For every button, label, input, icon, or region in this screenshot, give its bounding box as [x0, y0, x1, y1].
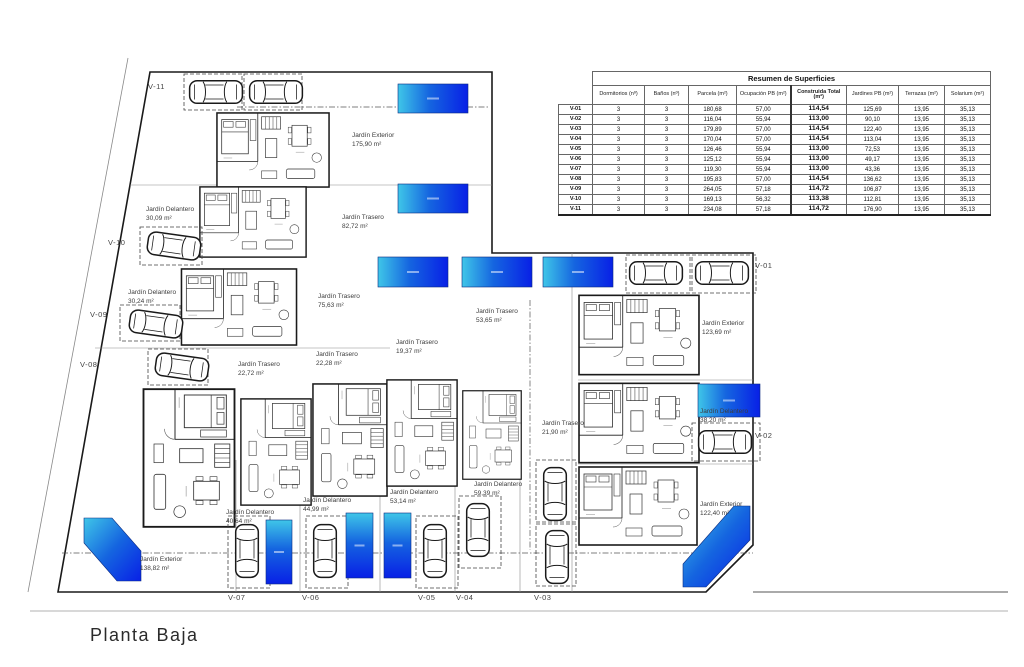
car-icon: [546, 531, 569, 584]
villa-unit: [181, 269, 296, 345]
garden-label: Jardín Delantero59,39 m²: [474, 481, 522, 499]
cell: 119,30: [689, 165, 737, 175]
garden-label: Jardín Trasero53,65 m²: [476, 308, 518, 326]
garden-name: Jardín Exterior: [702, 320, 744, 329]
garden-label: Jardín Delantero30,09 m²: [146, 206, 194, 224]
cell: 13,95: [899, 105, 945, 115]
car-icon: [236, 525, 259, 578]
garden-label: Jardín Exterior175,90 m²: [352, 132, 394, 150]
garden-name: Jardín Trasero: [318, 293, 360, 302]
unit-label: V-05: [418, 593, 435, 602]
car-icon: [630, 262, 683, 285]
garden-name: Jardín Trasero: [542, 420, 584, 429]
garden-label: Jardín Delantero44,99 m²: [303, 497, 351, 515]
table-row: V-0333179,8957,00114,54122,4013,9535,13: [559, 125, 991, 135]
cell: 264,05: [689, 185, 737, 195]
pool-text-mark: [572, 271, 584, 273]
garden-name: Jardín Exterior: [352, 132, 394, 141]
row-label: V-01: [559, 105, 593, 115]
garden-name: Jardín Trasero: [396, 339, 438, 348]
unit-label: V-07: [228, 593, 245, 602]
cell: 113,00: [791, 155, 847, 165]
car-icon: [696, 262, 749, 285]
cell: 3: [645, 195, 689, 205]
pool-text-mark: [393, 545, 403, 547]
floor-plan-sheet: Jardín Exterior175,90 m²Jardín Trasero82…: [0, 0, 1024, 667]
garden-area: 175,90 m²: [352, 141, 394, 150]
cell: 13,95: [899, 185, 945, 195]
cell: 114,54: [791, 125, 847, 135]
cell: 35,13: [945, 165, 991, 175]
cell: 55,94: [737, 155, 791, 165]
table-row: V-0133180,6857,00114,54125,6913,9535,13: [559, 105, 991, 115]
cell: 3: [645, 205, 689, 216]
cell: 112,81: [847, 195, 899, 205]
garden-label: Jardín Trasero22,72 m²: [238, 361, 280, 379]
cell: 57,00: [737, 125, 791, 135]
cell: 3: [593, 145, 645, 155]
villa-unit: [579, 383, 699, 462]
cell: 125,69: [847, 105, 899, 115]
cell: 13,95: [899, 125, 945, 135]
pool-text-mark: [427, 98, 439, 100]
car-icon: [190, 81, 243, 104]
garden-area: 138,82 m²: [140, 565, 182, 574]
cell: 3: [593, 105, 645, 115]
cell: 35,13: [945, 145, 991, 155]
garden-area: 30,24 m²: [128, 298, 176, 307]
column-header: Dormitorios (nº): [593, 86, 645, 105]
cell: 13,95: [899, 145, 945, 155]
cell: 3: [593, 185, 645, 195]
cell: 126,46: [689, 145, 737, 155]
garden-label: Jardín Delantero53,14 m²: [390, 489, 438, 507]
cell: 72,53: [847, 145, 899, 155]
villa-unit: [144, 389, 235, 527]
garden-area: 75,63 m²: [318, 302, 360, 311]
pool-text-mark: [274, 551, 284, 553]
cell: 3: [593, 135, 645, 145]
garden-area: 122,40 m²: [700, 510, 742, 519]
garden-area: 22,72 m²: [238, 370, 280, 379]
villa-unit: [463, 391, 522, 480]
garden-label: Jardín Trasero75,63 m²: [318, 293, 360, 311]
cell: 13,95: [899, 205, 945, 216]
cell: 3: [645, 155, 689, 165]
cell: 234,08: [689, 205, 737, 216]
cell: 3: [593, 205, 645, 216]
cell: 13,95: [899, 175, 945, 185]
garden-area: 22,28 m²: [316, 360, 358, 369]
surface-summary-table: Resumen de SuperficiesDormitorios (nº)Ba…: [558, 71, 991, 216]
table-row: V-0633125,1255,94113,0049,1713,9535,13: [559, 155, 991, 165]
garden-area: 19,37 m²: [396, 348, 438, 357]
cell: 3: [645, 115, 689, 125]
cell: 90,10: [847, 115, 899, 125]
garden-area: 38,20 m²: [700, 417, 748, 426]
cell: 3: [645, 135, 689, 145]
table-row: V-0833195,8357,00114,54136,6213,9535,13: [559, 175, 991, 185]
pool-text-mark: [427, 198, 439, 200]
garden-label: Jardín Trasero19,37 m²: [396, 339, 438, 357]
cell: 3: [593, 175, 645, 185]
cell: 195,83: [689, 175, 737, 185]
row-label: V-09: [559, 185, 593, 195]
pool-text-mark: [407, 271, 419, 273]
garden-name: Jardín Trasero: [476, 308, 518, 317]
pool-text-mark: [491, 271, 503, 273]
cell: 114,54: [791, 105, 847, 115]
cell: 170,04: [689, 135, 737, 145]
garden-label: Jardín Exterior138,82 m²: [140, 556, 182, 574]
cell: 3: [593, 165, 645, 175]
row-label: V-07: [559, 165, 593, 175]
cell: 57,00: [737, 175, 791, 185]
column-header: Jardines PB (m²): [847, 86, 899, 105]
garden-label: Jardín Trasero82,72 m²: [342, 214, 384, 232]
column-header: Ocupación PB (m²): [737, 86, 791, 105]
garden-label: Jardín Delantero38,20 m²: [700, 408, 748, 426]
garden-name: Jardín Delantero: [474, 481, 522, 490]
cell: 35,13: [945, 155, 991, 165]
table-row: V-0733119,3055,94113,0043,3613,9535,13: [559, 165, 991, 175]
garden-area: 53,14 m²: [390, 498, 438, 507]
column-header: Baños (nº): [645, 86, 689, 105]
villa-unit: [313, 384, 387, 496]
garden-area: 123,69 m²: [702, 329, 744, 338]
column-header: Parcela (m²): [689, 86, 737, 105]
garden-name: Jardín Trasero: [342, 214, 384, 223]
cell: 3: [593, 195, 645, 205]
unit-label: V-11: [148, 82, 165, 91]
cell: 176,90: [847, 205, 899, 216]
cell: 13,95: [899, 165, 945, 175]
cell: 35,13: [945, 205, 991, 216]
row-label: V-03: [559, 125, 593, 135]
cell: 43,36: [847, 165, 899, 175]
table-row: V-1033169,1356,32113,38112,8113,9535,13: [559, 195, 991, 205]
cell: 113,00: [791, 115, 847, 125]
plan-title: Planta Baja: [90, 625, 199, 646]
unit-label: V-01: [755, 261, 772, 270]
cell: 3: [645, 145, 689, 155]
unit-label: V-02: [755, 431, 772, 440]
car-icon: [424, 525, 447, 578]
cell: 113,00: [791, 145, 847, 155]
cell: 57,00: [737, 105, 791, 115]
cell: 55,94: [737, 165, 791, 175]
cell: 55,94: [737, 115, 791, 125]
garden-label: Jardín Exterior123,69 m²: [702, 320, 744, 338]
car-icon: [544, 468, 567, 521]
cell: 114,54: [791, 135, 847, 145]
garden-name: Jardín Delantero: [700, 408, 748, 417]
garden-area: 53,65 m²: [476, 317, 518, 326]
cell: 55,94: [737, 145, 791, 155]
cell: 3: [645, 105, 689, 115]
garden-label: Jardín Delantero30,24 m²: [128, 289, 176, 307]
car-icon: [314, 525, 337, 578]
cell: 116,04: [689, 115, 737, 125]
cell: 35,13: [945, 135, 991, 145]
villa-unit: [217, 113, 329, 187]
cell: 35,13: [945, 195, 991, 205]
row-label: V-05: [559, 145, 593, 155]
cell: 13,95: [899, 155, 945, 165]
pool-text-mark: [723, 400, 735, 402]
cell: 57,00: [737, 135, 791, 145]
cell: 3: [645, 165, 689, 175]
cell: 3: [645, 125, 689, 135]
villa-unit: [241, 399, 311, 505]
cell: 35,13: [945, 115, 991, 125]
cell: 122,40: [847, 125, 899, 135]
table-row: V-0933264,0557,18114,72106,8713,9535,13: [559, 185, 991, 195]
garden-name: Jardín Exterior: [140, 556, 182, 565]
table-row: V-0233116,0455,94113,0090,1013,9535,13: [559, 115, 991, 125]
garden-area: 40,64 m²: [226, 518, 274, 527]
unit-label: V-06: [302, 593, 319, 602]
garden-name: Jardín Delantero: [303, 497, 351, 506]
garden-name: Jardín Delantero: [146, 206, 194, 215]
cell: 180,68: [689, 105, 737, 115]
cell: 35,13: [945, 105, 991, 115]
row-label: V-10: [559, 195, 593, 205]
car-icon: [467, 504, 490, 557]
row-label: V-08: [559, 175, 593, 185]
cell: 3: [645, 185, 689, 195]
villa-unit: [579, 295, 699, 374]
cell: 56,32: [737, 195, 791, 205]
garden-area: 44,99 m²: [303, 506, 351, 515]
cell: 3: [593, 155, 645, 165]
table-row: V-0533126,4655,94113,0072,5313,9535,13: [559, 145, 991, 155]
cell: 179,89: [689, 125, 737, 135]
cell: 3: [593, 115, 645, 125]
garden-area: 21,90 m²: [542, 429, 584, 438]
cell: 35,13: [945, 125, 991, 135]
pool-text-mark: [355, 545, 365, 547]
garden-name: Jardín Exterior: [700, 501, 742, 510]
cell: 106,87: [847, 185, 899, 195]
unit-label: V-03: [534, 593, 551, 602]
cell: 57,18: [737, 205, 791, 216]
villa-unit: [200, 187, 306, 257]
cell: 3: [645, 175, 689, 185]
cell: 57,18: [737, 185, 791, 195]
garden-name: Jardín Delantero: [128, 289, 176, 298]
garden-name: Jardín Delantero: [390, 489, 438, 498]
column-header: Solarium (m²): [945, 86, 991, 105]
car-icon: [250, 81, 303, 104]
cell: 35,13: [945, 185, 991, 195]
garden-label: Jardín Trasero21,90 m²: [542, 420, 584, 438]
cell: 114,72: [791, 185, 847, 195]
cell: 114,72: [791, 205, 847, 216]
cell: 13,95: [899, 135, 945, 145]
villa-unit: [387, 380, 457, 486]
table-row: V-0433170,0457,00114,54113,0413,9535,13: [559, 135, 991, 145]
unit-label: V-04: [456, 593, 473, 602]
cell: 114,54: [791, 175, 847, 185]
garden-name: Jardín Trasero: [316, 351, 358, 360]
cell: 169,13: [689, 195, 737, 205]
garden-area: 59,39 m²: [474, 490, 522, 499]
row-label: V-06: [559, 155, 593, 165]
table-row: V-1133234,0857,18114,72176,9013,9535,13: [559, 205, 991, 216]
row-label: V-02: [559, 115, 593, 125]
cell: 125,12: [689, 155, 737, 165]
unit-label: V-10: [108, 238, 125, 247]
garden-area: 30,09 m²: [146, 215, 194, 224]
garden-area: 82,72 m²: [342, 223, 384, 232]
cell: 113,38: [791, 195, 847, 205]
cell: 136,62: [847, 175, 899, 185]
row-label: V-04: [559, 135, 593, 145]
garden-name: Jardín Trasero: [238, 361, 280, 370]
garden-label: Jardín Delantero40,64 m²: [226, 509, 274, 527]
unit-label: V-08: [80, 360, 97, 369]
cell: 113,04: [847, 135, 899, 145]
cell: 13,95: [899, 115, 945, 125]
column-header: Terrazas (m²): [899, 86, 945, 105]
table-title: Resumen de Superficies: [593, 72, 991, 86]
cell: 49,17: [847, 155, 899, 165]
cell: 3: [593, 125, 645, 135]
villa-unit: [579, 467, 697, 545]
garden-label: Jardín Exterior122,40 m²: [700, 501, 742, 519]
cell: 35,13: [945, 175, 991, 185]
column-header: Construida Total (m²): [791, 86, 847, 105]
unit-label: V-09: [90, 310, 107, 319]
row-label: V-11: [559, 205, 593, 216]
cell: 113,00: [791, 165, 847, 175]
garden-name: Jardín Delantero: [226, 509, 274, 518]
garden-label: Jardín Trasero22,28 m²: [316, 351, 358, 369]
car-icon: [699, 431, 752, 454]
cell: 13,95: [899, 195, 945, 205]
